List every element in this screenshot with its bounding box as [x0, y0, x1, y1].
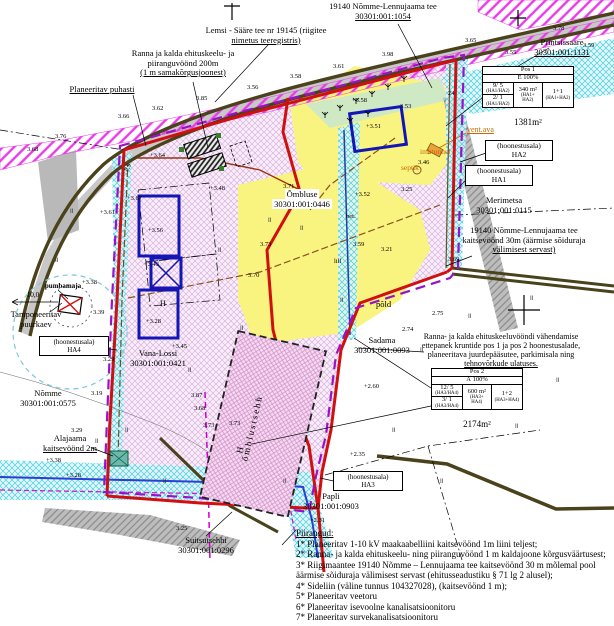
spot-elevation: 3.55: [505, 49, 516, 56]
label-alajaama-kaitsevoond: Alajaamakaitsevöönd 2m: [43, 434, 97, 453]
piirangud-list: 1* Planeeritav 1-10 kV maakaabelliini ka…: [296, 539, 614, 623]
spot-elevation: 3.19: [91, 390, 102, 397]
spot-elevation: 3.76: [55, 133, 66, 140]
piirangud-title: Piirangud:: [296, 528, 614, 539]
svg-text:II: II: [240, 325, 244, 332]
spot-elevation: 3.53: [400, 103, 411, 110]
svg-text:II: II: [515, 423, 519, 430]
label-imbtunnel: imbtunnel: [420, 148, 450, 156]
label-vent-ava: vent.ava: [467, 126, 494, 135]
spot-elevation: 3.66: [118, 113, 129, 120]
spot-elevation: 3.73: [229, 420, 240, 427]
svg-text:II: II: [340, 297, 344, 304]
spot-elevation: +2.31: [310, 517, 325, 524]
detail-plan-map: IIIIII IIIIII IIIIII IIIIII IIIIII IIIII…: [0, 0, 614, 626]
pos2-table: Pos 2 Ä 100% 12/ 5(HA3/HA4) 600 m²(HA3+H…: [431, 368, 523, 410]
spot-elevation: +3.38: [82, 279, 97, 286]
label-ranna-200m: Ranna ja kalda ehituskeelu- japiiranguvö…: [132, 49, 234, 78]
road-field-southeast: [377, 456, 614, 509]
svg-text:II: II: [125, 427, 129, 434]
hoonestusala-ha4-box: (hoonestusala)HA4: [39, 336, 109, 356]
pump-house: [58, 295, 82, 315]
piirangud-legend: Piirangud: 1* Planeeritav 1-10 kV maakaa…: [296, 528, 614, 623]
pos1-table: Pos 1 E 100% 9/ 5(HA1/HA2) 340 m²(HA1+HA…: [482, 66, 574, 108]
spot-elevation: 3.46: [418, 159, 429, 166]
spot-elevation: 3.59: [583, 42, 594, 49]
spot-elevation: 3.69: [448, 256, 459, 263]
pos2-area: 2174m²: [463, 419, 491, 429]
spot-elevation: 3.59: [353, 241, 364, 248]
hoonestusala-ha1-box: (hoonestusala)HA1: [465, 165, 533, 186]
svg-text:II: II: [188, 367, 192, 374]
hoonestusala-ha2-box: (hoonestusala)HA2: [485, 140, 553, 161]
spot-elevation: +3.28: [66, 472, 81, 479]
substation-building: [110, 451, 128, 466]
spot-elevation: 3.21: [381, 246, 392, 253]
label-bet: bet.: [346, 213, 356, 220]
spot-elevation: 3.25: [176, 525, 187, 532]
svg-text:II: II: [163, 478, 167, 485]
spot-elevation: 3.61: [333, 63, 344, 70]
spot-elevation: +3.38: [46, 457, 61, 464]
label-lill: lill: [334, 258, 341, 265]
spot-elevation: +3.52: [355, 191, 370, 198]
spot-elevation: +3.28: [146, 318, 161, 325]
label-parcel-vana-lossi: Vana-Lossi30301:001:0421: [130, 349, 186, 368]
label-tamponeeritav-puurkaev: Tamponeeritavpuurkaev: [11, 310, 62, 329]
spot-elevation: 3.58: [290, 73, 301, 80]
piirangud-item: 6* Planeeritav isevoolne kanalisatsiooni…: [296, 602, 614, 613]
label-septik: septik: [401, 164, 419, 172]
label-kaitsevoond-30m: 19140 Nõmme-Lennujaama teekaitsevöönd 30…: [463, 226, 586, 255]
spot-elevation: 3.29: [71, 427, 82, 434]
label-road-19140: 19140 Nõmme-Lennujaama tee30301:001:1054: [329, 2, 437, 21]
spot-elevation: +3.67: [127, 195, 142, 202]
spot-elevation: 3.29: [103, 356, 114, 363]
svg-text:II: II: [55, 257, 59, 264]
spot-elevation: 3.98: [382, 51, 393, 58]
road-right-branch: [452, 268, 614, 292]
piirangud-item: 7* Planeeritav survekanalisatsioonitoru: [296, 612, 614, 623]
spot-elevation: 3.70: [248, 272, 259, 279]
spot-elevation: 3.73: [260, 241, 271, 248]
svg-text:II: II: [556, 377, 560, 384]
spot-elevation: 2.74: [402, 326, 413, 333]
gray-patch-left: [38, 150, 79, 242]
spot-elevation: 3.78: [553, 25, 564, 32]
spot-elevation: +3.56: [148, 227, 163, 234]
label-parcel-papli: Papli30301:001:0903: [303, 492, 359, 511]
svg-text:II: II: [218, 247, 222, 254]
label-printsissaare: Printsissaare30301:001:1131: [534, 38, 589, 57]
svg-text:II: II: [268, 217, 272, 224]
hoonestusala-ha3-box: (hoonestusala)HA3: [333, 471, 403, 491]
spot-elevation: 2.75: [432, 310, 443, 317]
label-parcel-merimetsa: Merimetsa30301:001:0115: [476, 196, 531, 215]
spot-elevation: +3.45: [172, 343, 187, 350]
spot-elevation: +2.60: [364, 383, 379, 390]
label-parcel-suitsutsehhi: Suitsutsehhi30301:001:0296: [178, 536, 234, 555]
svg-text:II: II: [468, 313, 472, 320]
spot-elevation: +3.43: [144, 261, 159, 268]
spot-elevation: +3.64: [150, 152, 165, 159]
label-pumbamaja: pumbamaja: [45, 283, 81, 291]
label-parcel-sadama: Sadama30301:001:0093: [354, 336, 410, 355]
spot-elevation: 24: [448, 90, 455, 97]
label-lemsi-saare: Lemsi - Sääre tee nr 19145 (riigiteenime…: [206, 26, 327, 45]
label-parcel-ombluse: Õmbluse 30301:001:0446: [272, 190, 332, 209]
spot-elevation: 3.71: [283, 183, 294, 190]
spot-elevation: +2.35: [350, 451, 365, 458]
svg-text:II: II: [392, 427, 396, 434]
label-vahendamine: Ranna- ja kalda ehituskeeluvööndi vähend…: [422, 333, 580, 369]
spot-elevation: 3.87: [191, 392, 202, 399]
label-planeeritav-puhasti: Planeeritav puhasti: [70, 85, 135, 95]
spot-elevation: 3.68: [27, 146, 38, 153]
spot-elevation: +3.48: [210, 185, 225, 192]
spot-elevation: +3.61: [100, 209, 115, 216]
spot-elevation: +3.58: [352, 97, 367, 104]
label-dist-10: 10,0: [27, 292, 39, 300]
label-parcel-nomme: Nõmme30301:001:0575: [20, 389, 76, 408]
spot-elevation: 3.68: [194, 405, 205, 412]
piirangud-item: 3* Riigimaantee 19140 Nõmme – Lennujaama…: [296, 560, 614, 581]
piirangud-item: 5* Planeeritav veetoru: [296, 591, 614, 602]
svg-text:II: II: [283, 478, 287, 485]
spot-elevation: +3.51: [366, 123, 381, 130]
label-h-blue: H: [160, 300, 166, 309]
pos1-area: 1381m²: [514, 117, 542, 127]
spot-elevation: 3.73: [203, 422, 214, 429]
svg-text:II: II: [300, 225, 304, 232]
piirangud-item: 4* Sideliin (väline tunnus 104327028), (…: [296, 581, 614, 592]
spot-elevation: 3.62: [152, 105, 163, 112]
svg-text:II: II: [70, 208, 74, 215]
spot-elevation: 3.56: [247, 84, 258, 91]
spot-elevation: 3.65: [465, 37, 476, 44]
spot-elevation: 3.39: [93, 309, 104, 316]
spot-elevation: 3.25: [401, 186, 412, 193]
svg-text:II: II: [530, 295, 534, 302]
label-pold: põld: [376, 300, 391, 310]
svg-text:II: II: [440, 478, 444, 485]
spot-elevation: 3.85: [196, 95, 207, 102]
piirangud-item: 2* Ranna- ja kalda ehituskeelu- ning pii…: [296, 549, 614, 560]
piirangud-item: 1* Planeeritav 1-10 kV maakaabelliini ka…: [296, 539, 614, 550]
